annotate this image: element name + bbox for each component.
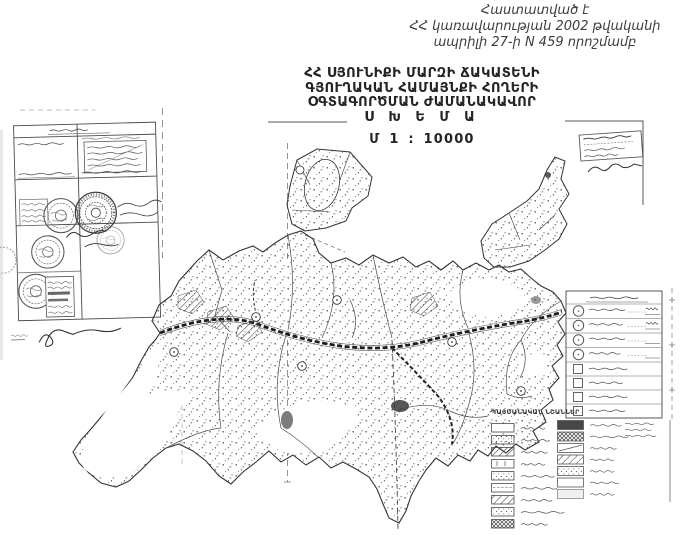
rect-stamp-block	[84, 140, 147, 173]
handwriting-scribble	[118, 200, 162, 207]
approval-line-2: ՀՀ կառավարության 2002 թվականի	[390, 19, 680, 35]
map-title-line-4: Ս Խ Ե Մ Ա	[272, 111, 572, 126]
handwriting-scribble	[120, 212, 158, 217]
legend-label-scribbles	[590, 424, 628, 495]
map-fragment-northeast	[481, 157, 569, 267]
map-title: ՀՀ ՍՅՈՒՆԻՔԻ ՄԱՐԶԻ ՃԱԿԱՏԵՆԻ ԳՅՈՒՂԱԿԱՆ ՀԱՄ…	[272, 67, 572, 125]
scan-edge-artifact	[0, 130, 3, 360]
circled-marker	[296, 166, 304, 174]
approval-note: Հաստատված է ՀՀ կառավարության 2002 թվական…	[390, 3, 680, 51]
map-title-line-1: ՀՀ ՍՅՈՒՆԻՔԻ ՄԱՐԶԻ ՃԱԿԱՏԵՆԻ	[272, 67, 572, 82]
cell-text-scribble	[19, 172, 72, 175]
rect-stamp-block	[45, 276, 74, 317]
registration-stamp-box	[579, 131, 643, 161]
cell-text-scribble	[18, 142, 64, 145]
table-header-scribble	[50, 129, 88, 132]
round-stamp	[75, 192, 117, 234]
legend-swatches	[558, 421, 584, 499]
signature-scribble	[588, 164, 642, 172]
cell-text-scribble	[82, 136, 140, 139]
right-legend-table	[566, 291, 662, 418]
approval-line-3: ապրիլի 27-ի N 459 որոշմամբ	[390, 35, 680, 51]
legend-note-scribbles	[625, 423, 656, 437]
map-scale: Մ 1 : 10000	[272, 132, 572, 147]
round-stamp	[31, 235, 64, 268]
approval-line-1: Հաստատված է	[390, 3, 680, 19]
legend-column-right	[558, 421, 657, 499]
round-stamp	[43, 198, 78, 233]
legend-title: ՊԱՅՄԱՆԱԿԱՆ ՆՇԱՆՆԵՐ	[489, 408, 581, 416]
round-stamp	[97, 226, 125, 254]
legend-swatches	[492, 424, 515, 529]
scanned-map-sheet: Հաստատված է ՀՀ կառավարության 2002 թվական…	[0, 0, 683, 535]
map-title-line-2: ԳՅՈՒՂԱԿԱՆ ՀԱՄԱՅՆՔԻ ՀՈՂԵՐԻ	[272, 82, 572, 97]
note-scribble	[11, 334, 28, 336]
signature-scribble	[39, 328, 121, 347]
approval-stamps-block	[0, 122, 165, 348]
map-title-line-3: ՕԳՏԱԳՈՐԾՄԱՆ ԺԱՄԱՆԱԿԱՎՈՐ	[272, 96, 572, 111]
